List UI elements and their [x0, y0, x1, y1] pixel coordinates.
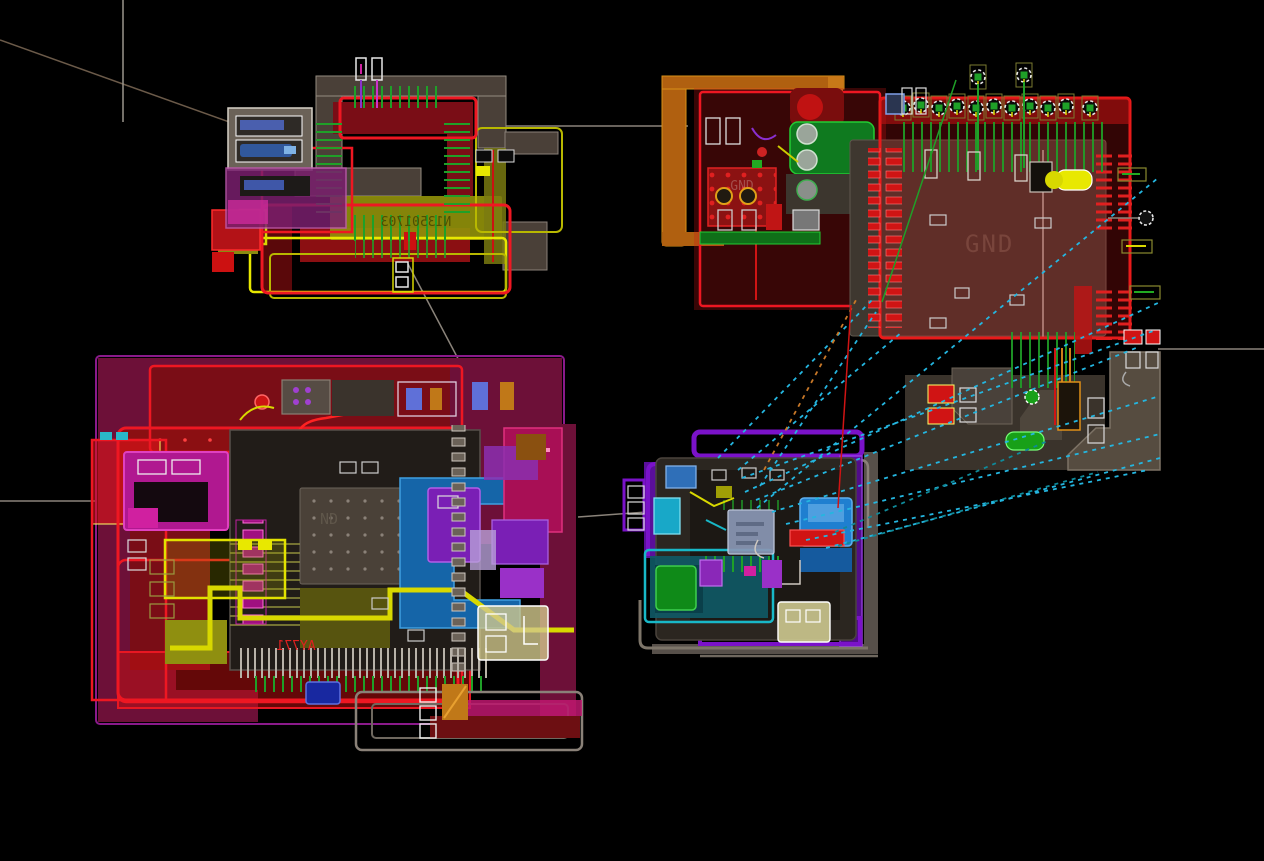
- pcb-module-top-right[interactable]: GND GND: [662, 63, 1160, 470]
- pcb-module-bottom-left[interactable]: ND: [92, 356, 582, 750]
- tl-silkscreen-text: N13501703: [381, 215, 451, 230]
- guide-line-tl-to-bl: [408, 264, 464, 370]
- tr-bottom-section: [905, 330, 1160, 470]
- silkscreen-part-number: N13501703: [381, 215, 451, 230]
- bl-silkscreen-text: AY771: [276, 639, 315, 654]
- silkscreen-ref-designator: AY771: [276, 639, 315, 654]
- tr-red-connector-column[interactable]: [868, 148, 902, 328]
- pcb-editor-canvas[interactable]: N13501703: [0, 0, 1264, 861]
- pcb-layout-svg[interactable]: N13501703: [0, 0, 1264, 861]
- pcb-module-top-left[interactable]: N13501703: [212, 58, 562, 298]
- tr-top-pad-row[interactable]: [886, 63, 1104, 172]
- gnd-partial-label: ND: [320, 510, 338, 528]
